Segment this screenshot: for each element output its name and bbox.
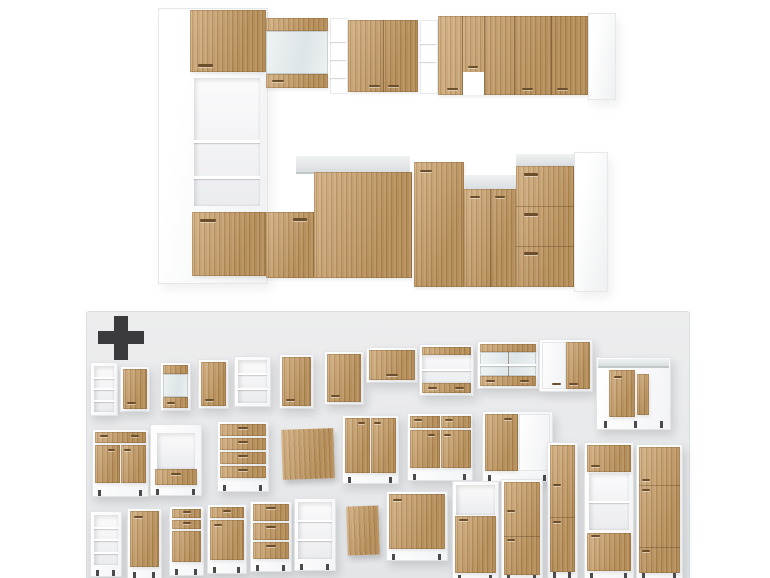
corner-base-cabinet: [314, 172, 412, 278]
door-handle: [420, 170, 432, 172]
module-oven-housing-cabinet: [150, 424, 202, 496]
handle: [223, 510, 231, 512]
handle: [455, 387, 464, 389]
leg: [259, 485, 262, 491]
door-handle: [522, 88, 533, 90]
module-tall-pantry-cabinet: [547, 442, 578, 578]
corner-wall-cabinet-run: [438, 16, 588, 95]
module-tall-microwave-cabinet: [452, 481, 499, 578]
handle: [266, 545, 276, 547]
handle: [591, 535, 600, 537]
niche-shelf: [194, 140, 260, 143]
door-handle: [388, 85, 399, 87]
drawer-seam: [516, 206, 574, 207]
leg: [624, 573, 627, 578]
leg: [660, 421, 663, 428]
leg: [112, 570, 115, 576]
lower-door: [587, 533, 631, 571]
wood-panel: [281, 428, 335, 480]
handle: [167, 402, 175, 404]
module-tall-oven-housing: [584, 442, 634, 578]
leg: [389, 477, 392, 483]
leg: [326, 564, 329, 570]
open-interior: [238, 360, 267, 403]
module-base-cabinet-two-drawers-door: [169, 506, 204, 576]
module-hood-wall-cabinet: [366, 347, 418, 383]
door-handle: [495, 196, 505, 198]
upper-door: [587, 445, 631, 472]
drawer-front: [95, 432, 146, 443]
leg: [192, 489, 195, 495]
drawer-handle: [524, 173, 538, 176]
module-tall-fridge-housing: [636, 444, 683, 578]
shelf: [420, 60, 436, 62]
door-handle: [447, 88, 458, 90]
drawer-front: [220, 424, 266, 436]
handle: [414, 419, 422, 421]
pantry-door: [550, 445, 575, 572]
module-drawer-base-cabinet: [217, 421, 269, 492]
leg: [604, 421, 607, 428]
leg: [223, 485, 226, 491]
module-wall-cabinet-door: [198, 359, 229, 409]
leg: [156, 489, 159, 495]
module-wall-cabinet-glass: [160, 362, 191, 411]
door-front: [410, 430, 440, 468]
handle: [507, 510, 515, 512]
leg: [175, 569, 178, 575]
leg: [438, 554, 441, 560]
shelf: [94, 552, 118, 554]
pantry-door: [504, 482, 540, 575]
handle: [553, 484, 561, 486]
handle: [238, 455, 248, 457]
handle: [520, 380, 529, 382]
module-base-cabinet-door: [127, 508, 162, 578]
module-open-shelf-base-unit: [90, 511, 122, 577]
handle: [428, 387, 437, 389]
handle: [205, 399, 214, 401]
leg: [96, 570, 99, 576]
drawer-seam: [516, 246, 574, 247]
handle: [331, 395, 340, 397]
door-front: [389, 494, 445, 549]
handle: [100, 435, 108, 437]
drawer-front: [410, 416, 440, 428]
leg: [139, 490, 142, 496]
handle: [374, 422, 381, 424]
handle: [124, 449, 131, 451]
leg: [553, 572, 556, 578]
wall-run-end-panel: [588, 13, 616, 100]
handle: [642, 479, 650, 481]
counter-top: [598, 359, 669, 368]
handle: [507, 539, 515, 541]
handle: [445, 419, 453, 421]
module-wall-cabinet-mixed-doors: [539, 339, 593, 392]
door-front: [130, 511, 159, 567]
door-front: [371, 418, 396, 473]
handle: [238, 469, 248, 471]
handle: [214, 524, 222, 526]
open-interior: [456, 485, 495, 515]
door-seam: [639, 485, 680, 486]
drawer-handle: [293, 218, 307, 221]
top-strip: [163, 365, 188, 374]
handle: [286, 399, 295, 401]
door-seam: [514, 16, 515, 95]
leg: [543, 475, 546, 481]
tall-cabinet-upper-door: [190, 10, 266, 72]
module-drawer-base-cabinet: [250, 501, 292, 572]
glass-wall-cabinet-top-strip: [266, 18, 328, 31]
handle: [183, 522, 191, 524]
module-wall-cabinet-door: [120, 366, 150, 412]
fridge-doors: [639, 447, 680, 573]
top-strip: [422, 347, 471, 355]
drawer-front: [210, 507, 244, 518]
module-base-cabinet-mixed-doors: [482, 411, 553, 482]
leg: [152, 572, 155, 578]
handle: [134, 516, 143, 518]
module-tall-pantry-cabinet: [501, 479, 543, 578]
drawer-front: [155, 469, 197, 485]
module-open-shelf-base-unit: [294, 498, 336, 571]
modules-overview-panel: [86, 311, 690, 578]
door-seam: [504, 536, 540, 537]
open-shelf-column: [330, 18, 348, 94]
door-handle: [557, 88, 568, 90]
handle: [266, 526, 276, 528]
leg: [282, 565, 285, 571]
handle: [504, 418, 512, 420]
leg: [642, 573, 645, 578]
shelf: [94, 377, 114, 379]
handle: [358, 422, 365, 424]
leg: [348, 477, 351, 483]
shelf: [589, 501, 629, 503]
door-handle: [198, 64, 213, 67]
niche-shelf: [194, 176, 260, 179]
module-wall-open-shelf-unit: [90, 362, 118, 416]
handle: [386, 374, 398, 376]
right-base-cabinet: [414, 162, 464, 287]
drawer-base-unit: [516, 166, 574, 287]
leg: [98, 490, 101, 496]
door-front: [210, 520, 244, 560]
module-corner-base-cabinet: [596, 357, 671, 430]
door-front: [566, 342, 590, 389]
handle: [127, 402, 136, 404]
leg: [463, 474, 466, 480]
door-front: [455, 516, 496, 573]
leg: [194, 569, 197, 575]
wood-panel: [346, 505, 380, 555]
handle: [428, 434, 435, 436]
top-strip: [480, 344, 536, 352]
module-wall-cabinet-open-wide: [419, 344, 474, 396]
drawer-handle: [524, 213, 538, 216]
door-seam: [490, 189, 491, 287]
handle: [642, 550, 650, 552]
leg: [300, 564, 303, 570]
white-door: [542, 342, 566, 389]
white-door: [519, 414, 550, 471]
handle: [238, 427, 248, 429]
handle: [183, 511, 191, 513]
shelf: [238, 373, 267, 375]
door-handle: [468, 66, 478, 68]
module-side-panel: [347, 506, 379, 555]
module-base-cabinet-door-wide: [386, 491, 448, 561]
leg: [256, 565, 259, 571]
drawer-front: [220, 438, 266, 450]
shelf: [330, 58, 346, 60]
handle: [569, 383, 578, 385]
door-front: [485, 414, 518, 471]
leg: [133, 572, 136, 578]
drawer-handle: [524, 252, 538, 255]
handle: [131, 435, 139, 437]
door-seam: [484, 16, 485, 95]
handle: [266, 507, 276, 509]
module-wall-cabinet-glass-wide: [477, 341, 539, 389]
shelf: [330, 40, 346, 42]
open-interior: [157, 433, 195, 469]
drawer-handle: [200, 219, 216, 222]
handle: [393, 499, 402, 501]
shelf: [94, 388, 114, 390]
handle: [486, 380, 495, 382]
hood-recess: [463, 72, 484, 95]
shelf: [94, 539, 118, 541]
leg: [590, 573, 593, 578]
door-handle: [470, 196, 480, 198]
shelf: [298, 520, 332, 522]
leg: [392, 554, 395, 560]
handle: [238, 441, 248, 443]
drawer-front: [220, 452, 266, 464]
leg: [413, 474, 416, 480]
handle: [642, 489, 650, 491]
module-base-cabinet-drawer-two-doors: [92, 429, 149, 497]
glass-wall-cabinet-pane: [266, 31, 328, 74]
module-base-cabinet-drawer-door: [207, 504, 247, 574]
shelf: [330, 76, 346, 78]
drawer-front: [441, 416, 471, 428]
module-base-cabinet-two-doors: [342, 415, 399, 484]
door-handle: [369, 85, 380, 87]
module-appliance-front-panel: [282, 429, 334, 479]
drawer-front: [220, 466, 266, 478]
handle: [108, 449, 115, 451]
module-wall-cabinet-door: [324, 351, 364, 405]
modules-grid: [87, 312, 689, 578]
product-image: [0, 0, 770, 578]
shelf: [298, 539, 332, 541]
leg: [673, 573, 676, 578]
door-front: [172, 531, 201, 562]
handle: [171, 473, 181, 475]
handle: [459, 519, 468, 521]
leg: [237, 567, 240, 573]
corner-door: [609, 370, 635, 417]
door-seam: [551, 16, 552, 95]
left-base-cabinet-front: [266, 212, 314, 278]
handle: [553, 521, 561, 523]
module-wall-cabinet-door: [279, 354, 314, 409]
handle: [444, 434, 451, 436]
door-seam: [550, 517, 575, 518]
leg: [634, 421, 637, 428]
handle: [591, 465, 600, 467]
leg: [213, 567, 216, 573]
glass-pane: [163, 374, 188, 397]
handle: [614, 376, 622, 378]
door-seam: [383, 20, 384, 92]
shelf: [94, 400, 114, 402]
leg: [568, 572, 571, 578]
door-seam: [639, 547, 680, 548]
handle: [552, 383, 561, 385]
shelf: [420, 42, 436, 44]
open-interior: [298, 502, 332, 559]
shelf: [422, 369, 471, 371]
base-run-end-panel: [574, 152, 608, 292]
open-shelf-column: [420, 20, 438, 94]
shelf: [480, 364, 536, 366]
corner-side: [637, 374, 649, 415]
module-wall-open-shelf-unit: [234, 356, 271, 407]
shelf: [94, 527, 118, 529]
door-front: [345, 418, 370, 473]
module-base-cabinet-two-doors-two-drawers: [407, 413, 473, 481]
shelf: [238, 388, 267, 390]
door-handle: [272, 80, 284, 82]
assembled-kitchen-view: [0, 0, 770, 308]
